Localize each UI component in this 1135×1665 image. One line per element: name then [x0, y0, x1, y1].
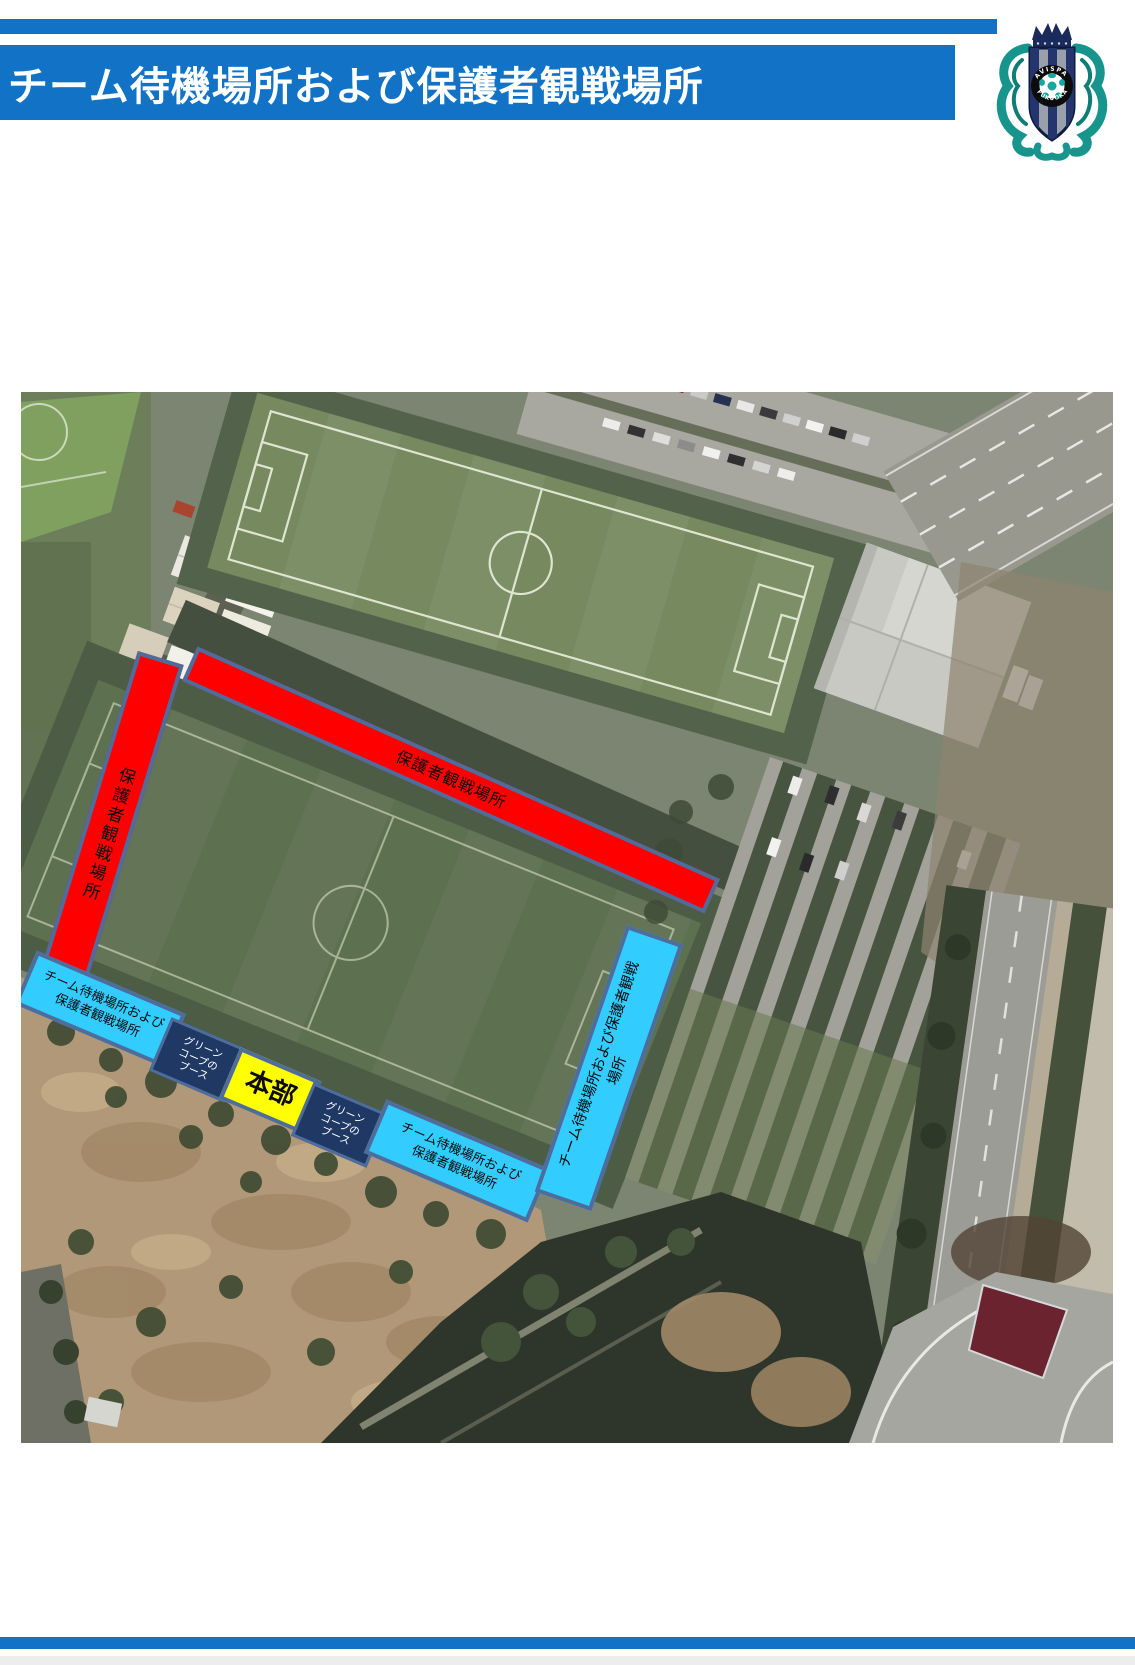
title-band: チーム待機場所および保護者観戦場所	[0, 45, 955, 120]
footer-edge-strip	[0, 1656, 1135, 1665]
page-title: チーム待機場所および保護者観戦場所	[0, 54, 704, 112]
zone-headquarters-label: 本部	[239, 1064, 300, 1115]
footer-accent-bar	[0, 1637, 1135, 1649]
crest-crown	[1032, 23, 1072, 40]
club-crest-logo: AVISPA FUKUOKA	[992, 20, 1112, 162]
aerial-map: 保護者観戦場所 保護者観戦場所 チーム待機場所および 保護者観戦場所 グリーン …	[21, 392, 1113, 1443]
header-accent-bar	[0, 19, 997, 34]
satellite-scene	[21, 392, 1113, 1443]
slide-page: チーム待機場所および保護者観戦場所	[0, 0, 1135, 1665]
